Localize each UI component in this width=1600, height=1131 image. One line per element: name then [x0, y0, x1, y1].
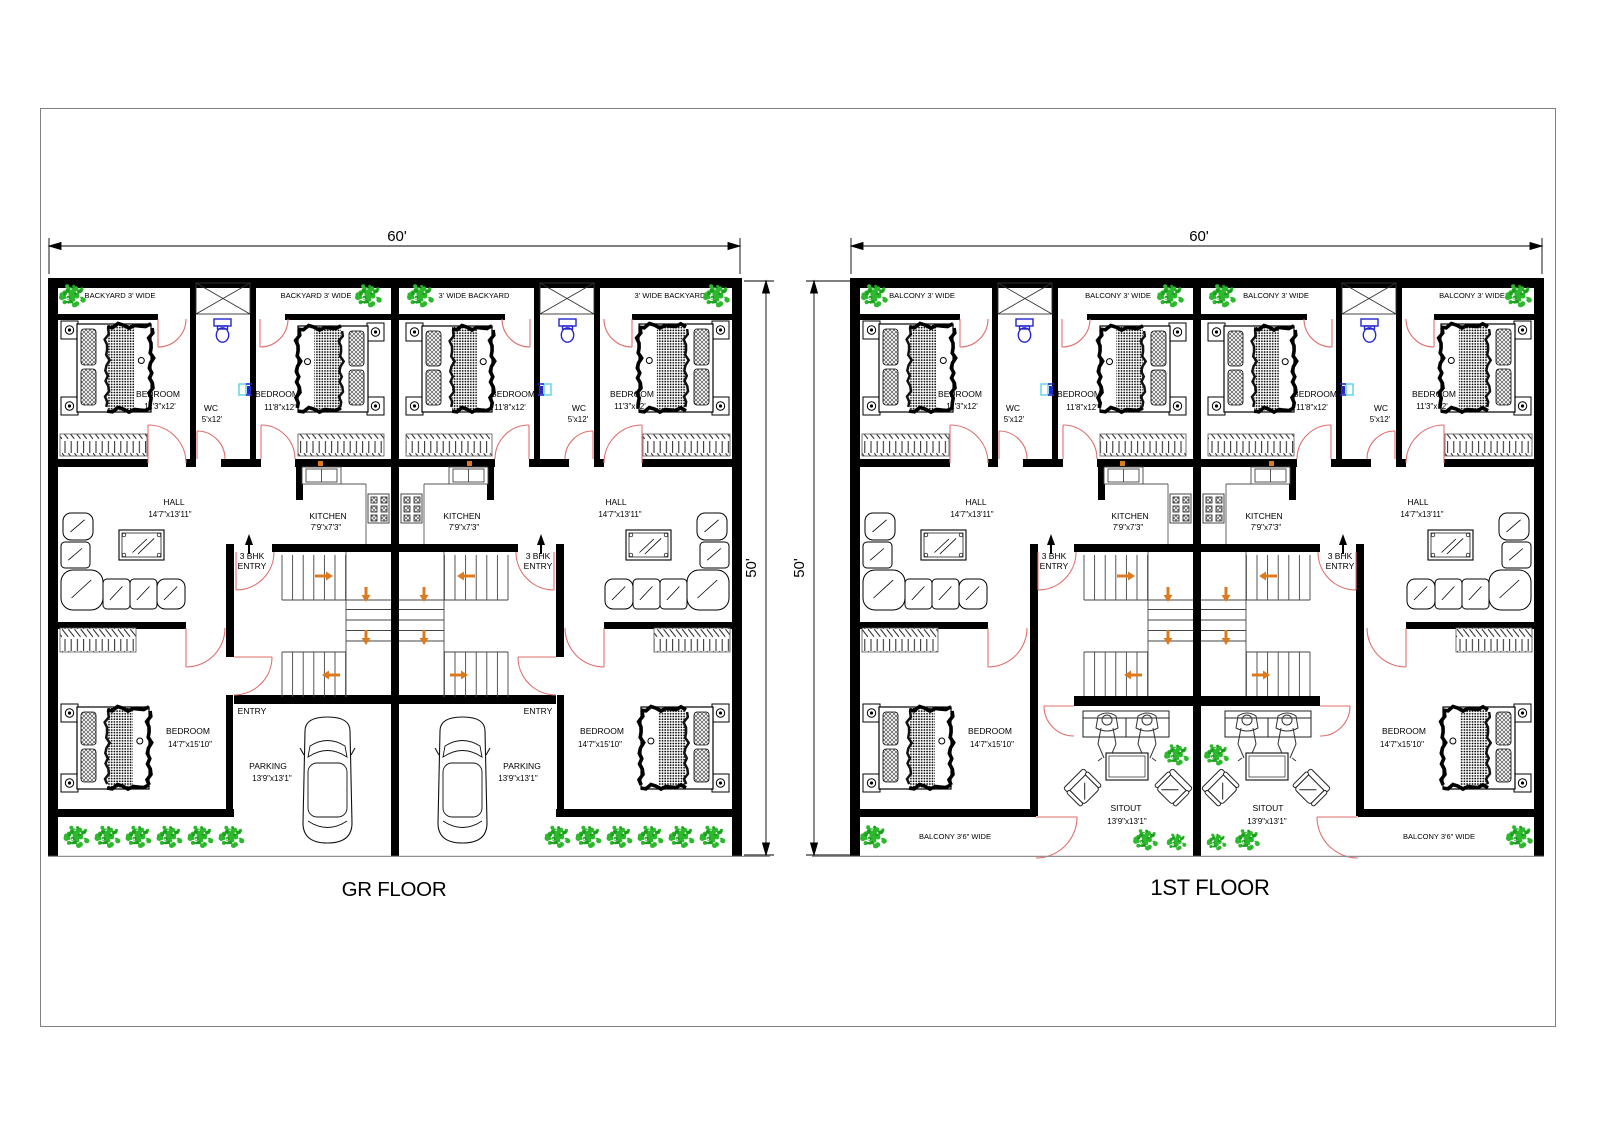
svg-text:14'7"x15'10": 14'7"x15'10": [1380, 740, 1424, 749]
svg-text:BALCONY 3' WIDE: BALCONY 3' WIDE: [1243, 291, 1309, 300]
svg-text:11'3"x12': 11'3"x12': [946, 402, 978, 411]
svg-text:BACKYARD 3' WIDE: BACKYARD 3' WIDE: [281, 291, 352, 300]
svg-text:BEDROOM: BEDROOM: [1382, 726, 1426, 736]
svg-text:KITCHEN: KITCHEN: [1111, 511, 1148, 521]
svg-text:BEDROOM: BEDROOM: [1293, 389, 1337, 399]
svg-text:60': 60': [1189, 228, 1209, 245]
svg-text:BALCONY 3' WIDE: BALCONY 3' WIDE: [1085, 291, 1151, 300]
svg-text:13'9"x13'1": 13'9"x13'1": [1247, 817, 1287, 826]
svg-text:SITOUT: SITOUT: [1252, 803, 1283, 813]
svg-text:HALL: HALL: [1407, 497, 1429, 507]
svg-text:PARKING: PARKING: [249, 761, 287, 771]
svg-text:5'x12': 5'x12': [1004, 415, 1025, 424]
svg-text:3' WIDE BACKYARD: 3' WIDE BACKYARD: [635, 291, 706, 300]
svg-text:11'8"x12': 11'8"x12': [1296, 403, 1328, 412]
svg-text:ENTRY: ENTRY: [1040, 561, 1069, 571]
svg-text:14'7"x13'11": 14'7"x13'11": [148, 510, 191, 519]
svg-text:11'3"x12': 11'3"x12': [144, 402, 176, 411]
svg-text:WC: WC: [572, 403, 586, 413]
svg-text:14'7"x13'11": 14'7"x13'11": [1400, 510, 1443, 519]
svg-text:KITCHEN: KITCHEN: [1245, 511, 1282, 521]
svg-text:1ST FLOOR: 1ST FLOOR: [1150, 875, 1269, 900]
svg-text:3 BHK: 3 BHK: [526, 551, 551, 561]
svg-text:BEDROOM: BEDROOM: [166, 726, 210, 736]
svg-text:BEDROOM: BEDROOM: [136, 389, 180, 399]
svg-text:3 BHK: 3 BHK: [240, 551, 265, 561]
svg-text:ENTRY: ENTRY: [1326, 561, 1355, 571]
svg-text:ENTRY: ENTRY: [524, 706, 553, 716]
svg-text:HALL: HALL: [605, 497, 627, 507]
svg-text:7'9"x7'3": 7'9"x7'3": [1251, 523, 1282, 532]
svg-text:BALCONY 3'6" WIDE: BALCONY 3'6" WIDE: [919, 832, 991, 841]
svg-text:11'3"x12': 11'3"x12': [614, 402, 646, 411]
svg-text:14'7"x13'11": 14'7"x13'11": [950, 510, 993, 519]
svg-text:BEDROOM: BEDROOM: [580, 726, 624, 736]
svg-text:BEDROOM: BEDROOM: [1057, 389, 1101, 399]
svg-text:11'8"x12': 11'8"x12': [264, 403, 296, 412]
svg-text:ENTRY: ENTRY: [238, 561, 267, 571]
svg-text:5'x12': 5'x12': [202, 415, 223, 424]
svg-text:WC: WC: [204, 403, 218, 413]
svg-text:11'8"x12': 11'8"x12': [494, 403, 526, 412]
svg-text:3' WIDE BACKYARD: 3' WIDE BACKYARD: [439, 291, 510, 300]
svg-text:ENTRY: ENTRY: [238, 706, 267, 716]
svg-text:BEDROOM: BEDROOM: [938, 389, 982, 399]
svg-text:HALL: HALL: [163, 497, 185, 507]
svg-text:BEDROOM: BEDROOM: [491, 389, 535, 399]
svg-text:HALL: HALL: [965, 497, 987, 507]
svg-text:PARKING: PARKING: [503, 761, 541, 771]
svg-text:5'x12': 5'x12': [1370, 415, 1391, 424]
svg-text:11'8"x12': 11'8"x12': [1066, 403, 1098, 412]
svg-text:KITCHEN: KITCHEN: [309, 511, 346, 521]
svg-text:7'9"x7'3": 7'9"x7'3": [311, 523, 342, 532]
svg-text:14'7"x13'11": 14'7"x13'11": [598, 510, 641, 519]
svg-text:13'9"x13'1": 13'9"x13'1": [498, 774, 538, 783]
svg-text:13'9"x13'1": 13'9"x13'1": [1107, 817, 1147, 826]
svg-text:14'7"x15'10": 14'7"x15'10": [168, 740, 212, 749]
svg-text:BACKYARD 3' WIDE: BACKYARD 3' WIDE: [85, 291, 156, 300]
svg-text:3 BHK: 3 BHK: [1328, 551, 1353, 561]
svg-text:50': 50': [791, 558, 808, 578]
svg-text:WC: WC: [1374, 403, 1388, 413]
svg-text:11'3"x12': 11'3"x12': [1416, 402, 1448, 411]
svg-text:50': 50': [743, 558, 760, 578]
svg-text:BALCONY 3' WIDE: BALCONY 3' WIDE: [1439, 291, 1505, 300]
svg-text:BALCONY 3' WIDE: BALCONY 3' WIDE: [889, 291, 955, 300]
svg-text:ENTRY: ENTRY: [524, 561, 553, 571]
svg-text:7'9"x7'3": 7'9"x7'3": [1113, 523, 1144, 532]
svg-text:KITCHEN: KITCHEN: [443, 511, 480, 521]
svg-text:5'x12': 5'x12': [568, 415, 589, 424]
svg-text:13'9"x13'1": 13'9"x13'1": [252, 774, 292, 783]
svg-text:SITOUT: SITOUT: [1110, 803, 1141, 813]
svg-text:7'9"x7'3": 7'9"x7'3": [449, 523, 480, 532]
svg-text:BEDROOM: BEDROOM: [610, 389, 654, 399]
svg-text:3 BHK: 3 BHK: [1042, 551, 1067, 561]
svg-text:14'7"x15'10": 14'7"x15'10": [970, 740, 1014, 749]
svg-text:BEDROOM: BEDROOM: [968, 726, 1012, 736]
svg-text:BALCONY 3'6" WIDE: BALCONY 3'6" WIDE: [1403, 832, 1475, 841]
svg-text:BEDROOM: BEDROOM: [1412, 389, 1456, 399]
svg-text:BEDROOM: BEDROOM: [255, 389, 299, 399]
svg-text:GR FLOOR: GR FLOOR: [342, 878, 447, 901]
svg-text:60': 60': [387, 228, 407, 245]
svg-text:WC: WC: [1006, 403, 1020, 413]
svg-text:14'7"x15'10": 14'7"x15'10": [578, 740, 622, 749]
